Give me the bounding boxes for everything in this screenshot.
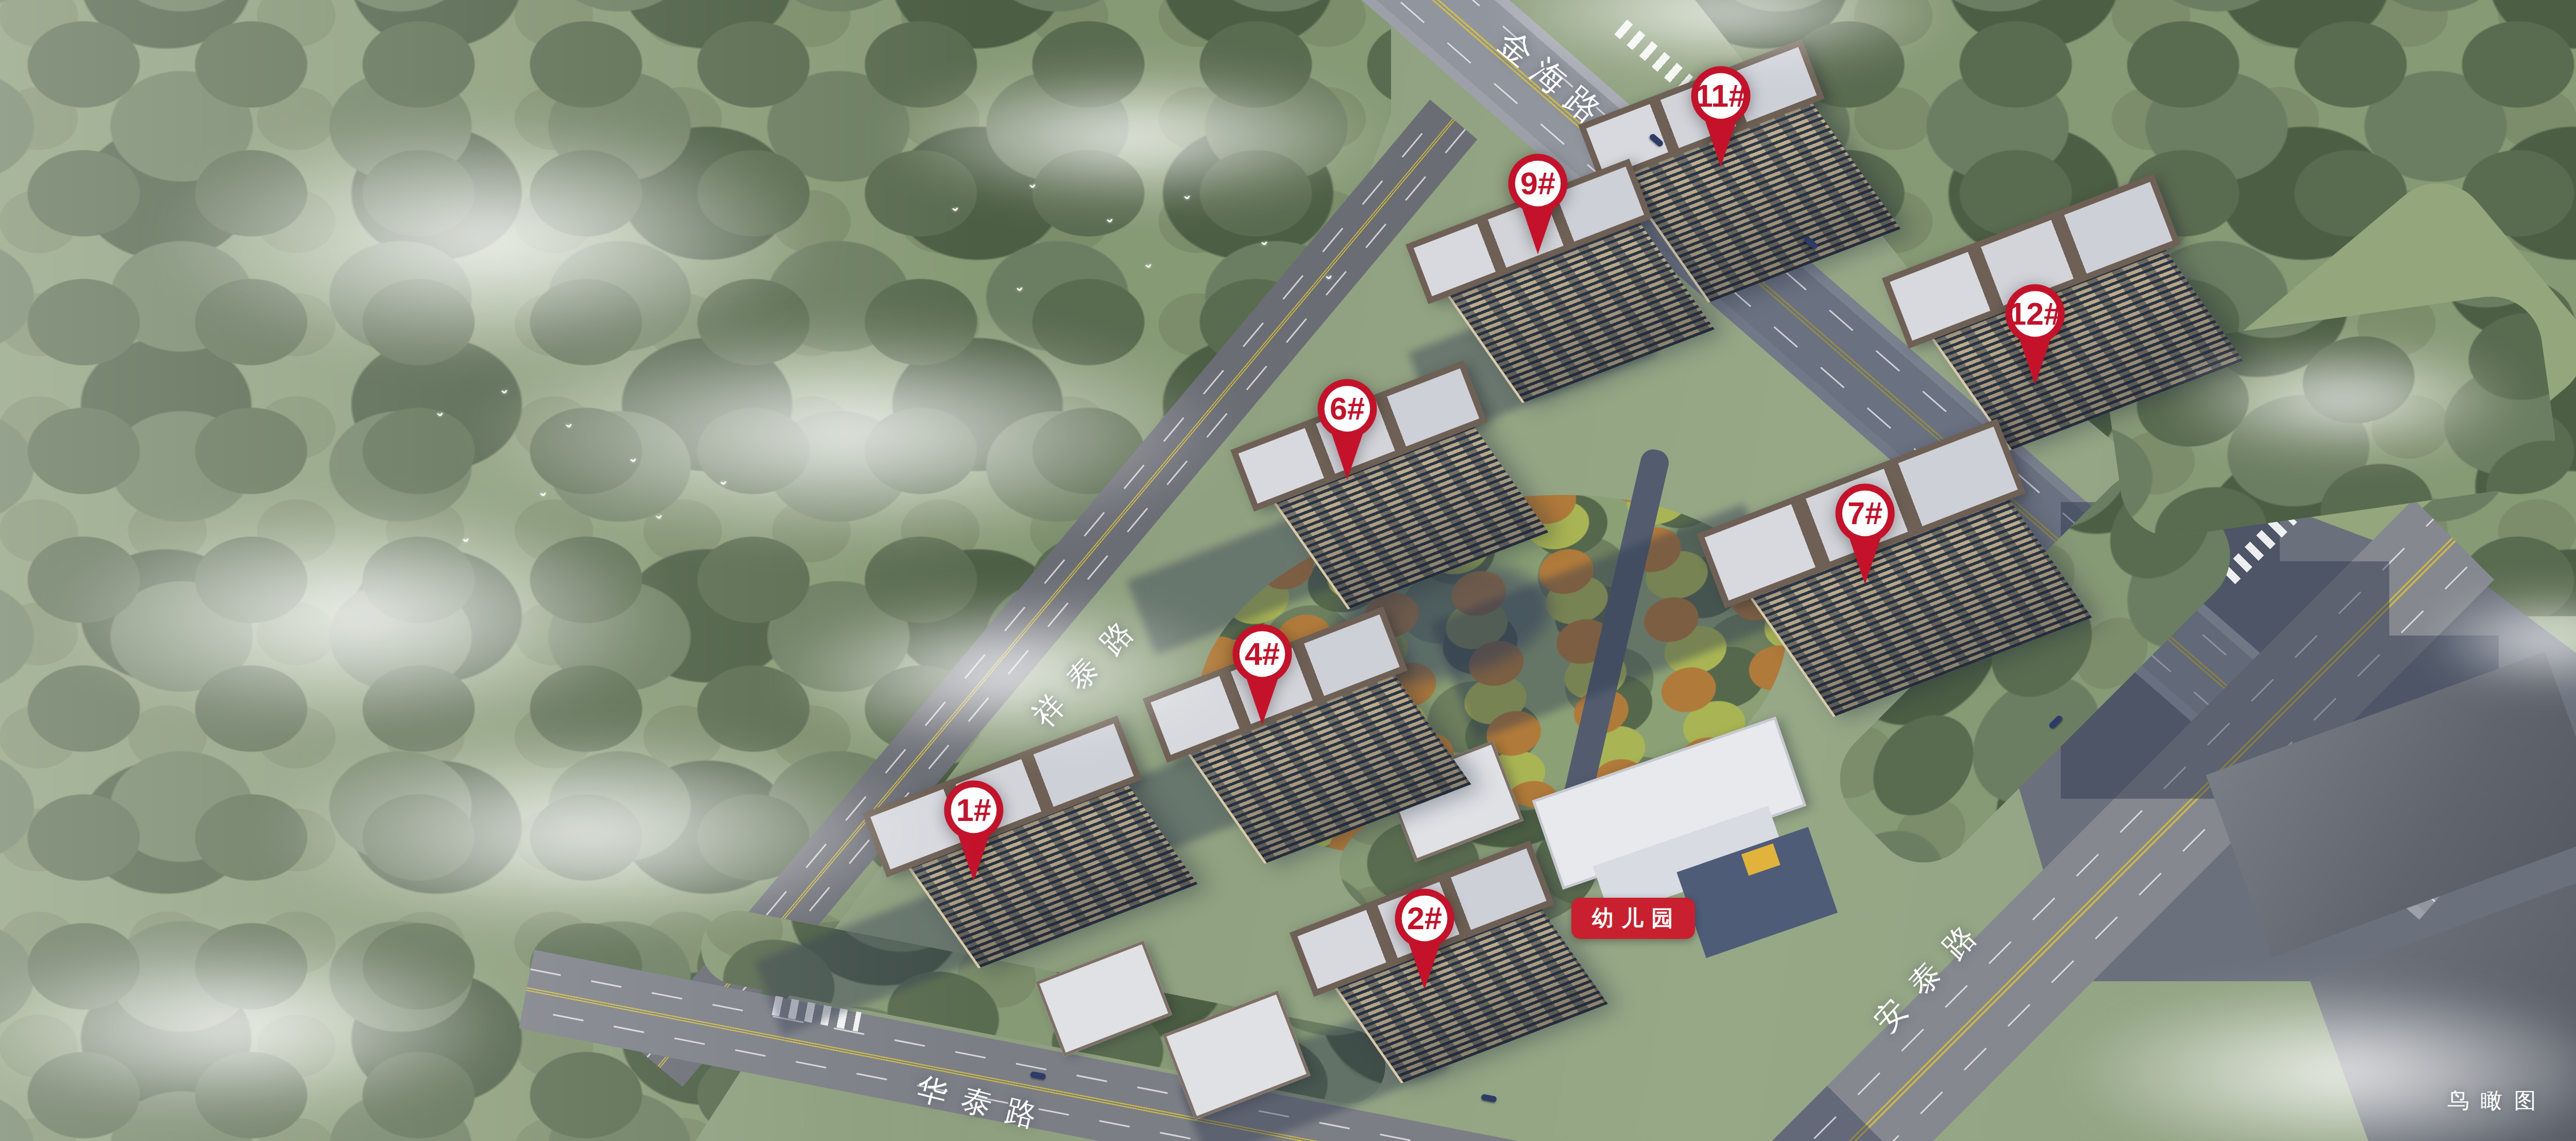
building-pin-7[interactable]: 7# (1833, 482, 1897, 585)
pin-label: 1# (942, 779, 1006, 841)
pin-label: 12# (2003, 283, 2067, 345)
fog-patch (2061, 981, 2576, 1141)
fog-patch (464, 320, 1236, 548)
bird-icon: ˇ (566, 422, 573, 441)
caption-birdseye: 鸟瞰图 (2447, 1086, 2548, 1116)
road-label-xiangtai: 祥泰路 (1024, 599, 1156, 736)
fog-patch (1494, 0, 1958, 69)
pin-label: 9# (1506, 153, 1570, 214)
kindergarten-badge: 幼儿园 (1571, 898, 1695, 939)
fog-patch (258, 730, 927, 936)
bird-icon: ˇ (656, 513, 664, 532)
building-pin-2[interactable]: 2# (1393, 887, 1457, 991)
fog-patch (52, 502, 670, 730)
building-pin-12[interactable]: 12# (2003, 283, 2067, 386)
bird-icon: ˇ (952, 205, 960, 224)
bird-icon: ˇ (720, 479, 728, 498)
bird-icon: ˇ (1145, 262, 1153, 281)
building-pin-9[interactable]: 9# (1506, 153, 1570, 256)
bird-icon: ˇ (540, 490, 548, 509)
car (2048, 714, 2063, 730)
fog-patch (0, 935, 515, 1118)
building-pin-6[interactable]: 6# (1315, 378, 1380, 481)
road-label-huatai: 华泰路 (912, 1068, 1056, 1141)
road-label-antai: 安泰路 (1866, 903, 1999, 1042)
car (1030, 1071, 1046, 1080)
bird-icon: ˇ (463, 536, 470, 555)
dynamic-content: 1#2#4#6#7#9#11#12#金海路祥泰路安泰路华泰路幼儿园ˇˇˇˇˇˇˇ… (0, 0, 2576, 1141)
bird-icon: ˇ (1326, 274, 1333, 293)
bird-icon: ˇ (1184, 194, 1192, 213)
bird-icon: ˇ (1016, 285, 1024, 304)
bird-icon: ˇ (630, 456, 638, 475)
aerial-rendering: 1#2#4#6#7#9#11#12#金海路祥泰路安泰路华泰路幼儿园ˇˇˇˇˇˇˇ… (0, 0, 2576, 1141)
pin-label: 11# (1689, 65, 1753, 127)
bird-icon: ˇ (1029, 182, 1037, 202)
pin-label: 6# (1315, 378, 1380, 440)
building-pin-1[interactable]: 1# (942, 779, 1006, 882)
bird-icon: ˇ (1261, 239, 1269, 258)
pin-label: 7# (1833, 482, 1897, 544)
building-pin-11[interactable]: 11# (1689, 65, 1753, 168)
bird-icon: ˇ (1107, 216, 1114, 236)
bird-icon: ˇ (437, 410, 445, 429)
building-pin-4[interactable]: 4# (1230, 623, 1295, 726)
pin-label: 2# (1393, 887, 1457, 949)
fog-patch (2421, 593, 2576, 684)
fog-patch (876, 69, 1391, 206)
fog-patch (155, 114, 824, 365)
bird-icon: ˇ (501, 388, 509, 407)
pin-label: 4# (1230, 623, 1295, 685)
